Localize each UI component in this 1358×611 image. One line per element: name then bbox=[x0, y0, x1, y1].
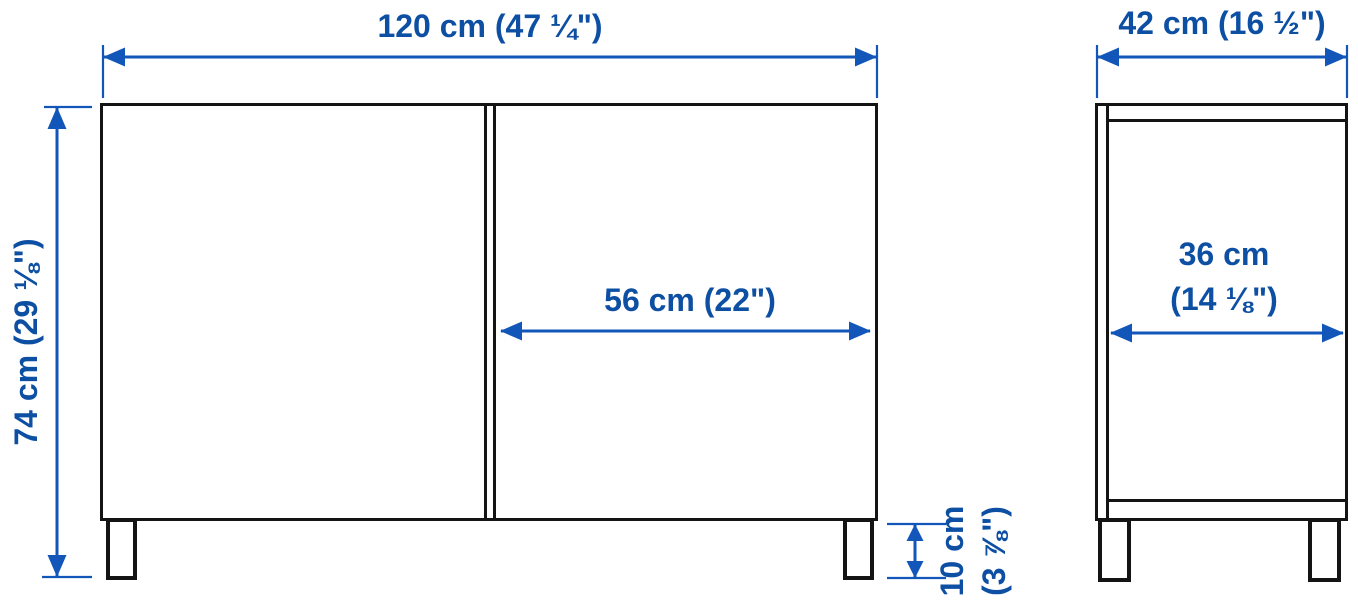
side-depth-arrow bbox=[1097, 45, 1347, 98]
side-inner-depth-arrow bbox=[1110, 324, 1344, 343]
side-inner-depth-label: 36 cm (14 ⅛") bbox=[1170, 232, 1278, 322]
leg-height-label: 10 cm (3 ⅞") bbox=[931, 506, 1015, 597]
leg-height-label-line1: 10 cm bbox=[931, 506, 973, 597]
front-height-arrow bbox=[42, 107, 92, 577]
dimension-diagram: 120 cm (47 ¼") 74 cm (29 ⅛") 56 cm (22")… bbox=[0, 0, 1358, 611]
front-width-label: 120 cm (47 ¼") bbox=[377, 6, 602, 46]
front-height-label: 74 cm (29 ⅛") bbox=[6, 238, 46, 445]
side-depth-label: 42 cm (16 ½") bbox=[1118, 3, 1325, 43]
side-inner-depth-label-line1: 36 cm bbox=[1170, 232, 1278, 277]
leg-height-label-line2: (3 ⅞") bbox=[973, 506, 1015, 597]
door-width-arrow bbox=[500, 322, 871, 341]
side-inner-depth-label-line2: (14 ⅛") bbox=[1170, 277, 1278, 322]
front-width-arrow bbox=[103, 45, 877, 98]
door-width-label: 56 cm (22") bbox=[604, 280, 776, 320]
